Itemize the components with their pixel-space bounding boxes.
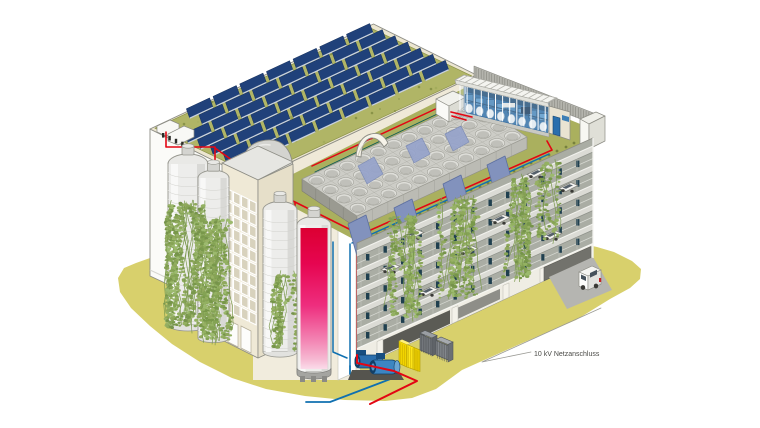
svg-text:10 kV Netzanschluss: 10 kV Netzanschluss (534, 351, 600, 358)
